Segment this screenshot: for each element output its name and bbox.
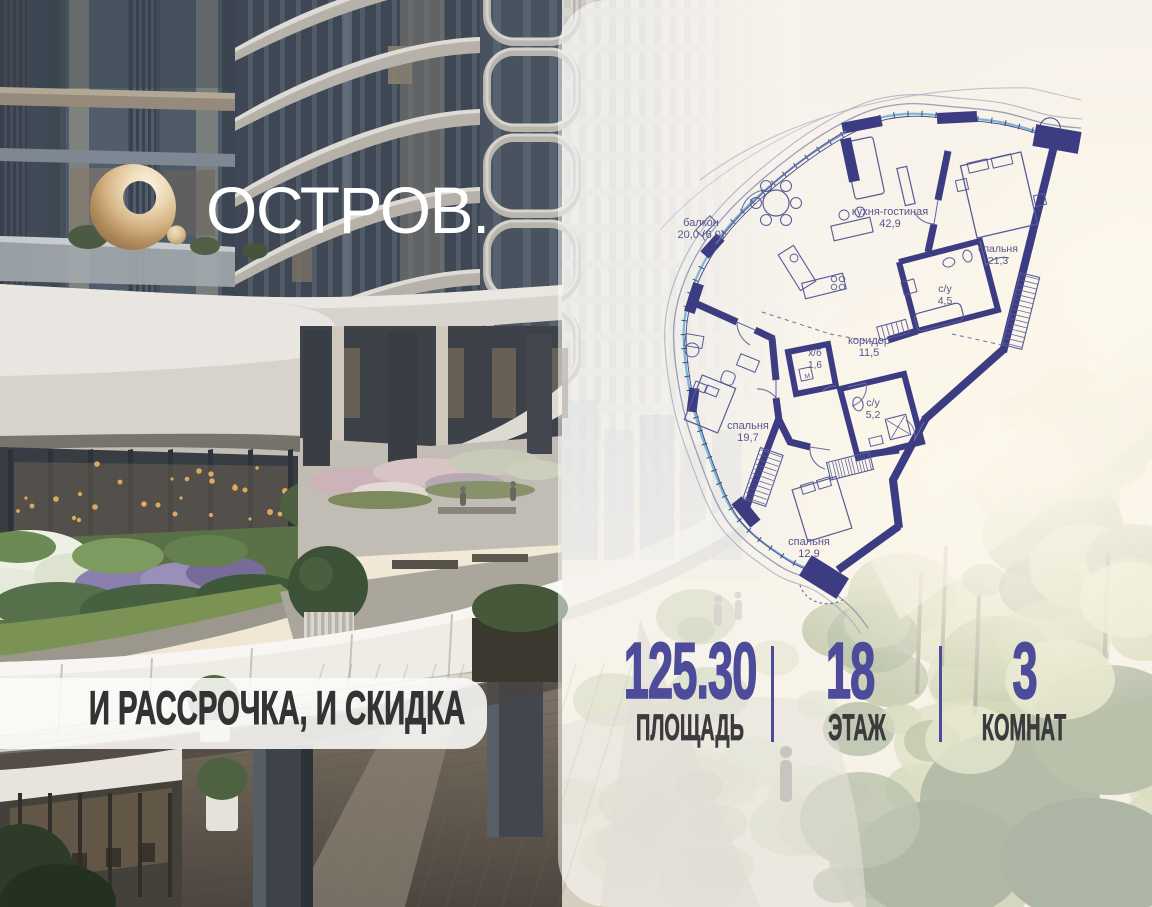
svg-text:с/у: с/у [938, 283, 952, 295]
svg-text:4,5: 4,5 [938, 295, 953, 307]
svg-text:21,3: 21,3 [988, 255, 1009, 267]
svg-text:х/б: х/б [808, 347, 822, 359]
svg-text:19,7: 19,7 [737, 432, 758, 444]
svg-text:коридор: коридор [848, 335, 890, 347]
svg-text:с/у: с/у [866, 397, 880, 409]
svg-text:5,2: 5,2 [866, 409, 881, 421]
svg-text:11,5: 11,5 [859, 347, 880, 359]
svg-text:12,9: 12,9 [798, 548, 819, 560]
svg-text:M: M [804, 373, 811, 381]
svg-text:20,0 (6,0): 20,0 (6,0) [677, 229, 724, 241]
svg-text:ОСТРОВ.: ОСТРОВ. [206, 173, 489, 247]
svg-text:спальня: спальня [788, 536, 830, 548]
svg-text:42,9: 42,9 [879, 218, 900, 230]
svg-text:спальня: спальня [978, 243, 1018, 255]
svg-text:1,6: 1,6 [808, 360, 822, 371]
svg-text:спальня: спальня [727, 420, 769, 432]
svg-text:кухня-гостиная: кухня-гостиная [852, 206, 928, 218]
svg-text:балкон: балкон [683, 217, 719, 229]
